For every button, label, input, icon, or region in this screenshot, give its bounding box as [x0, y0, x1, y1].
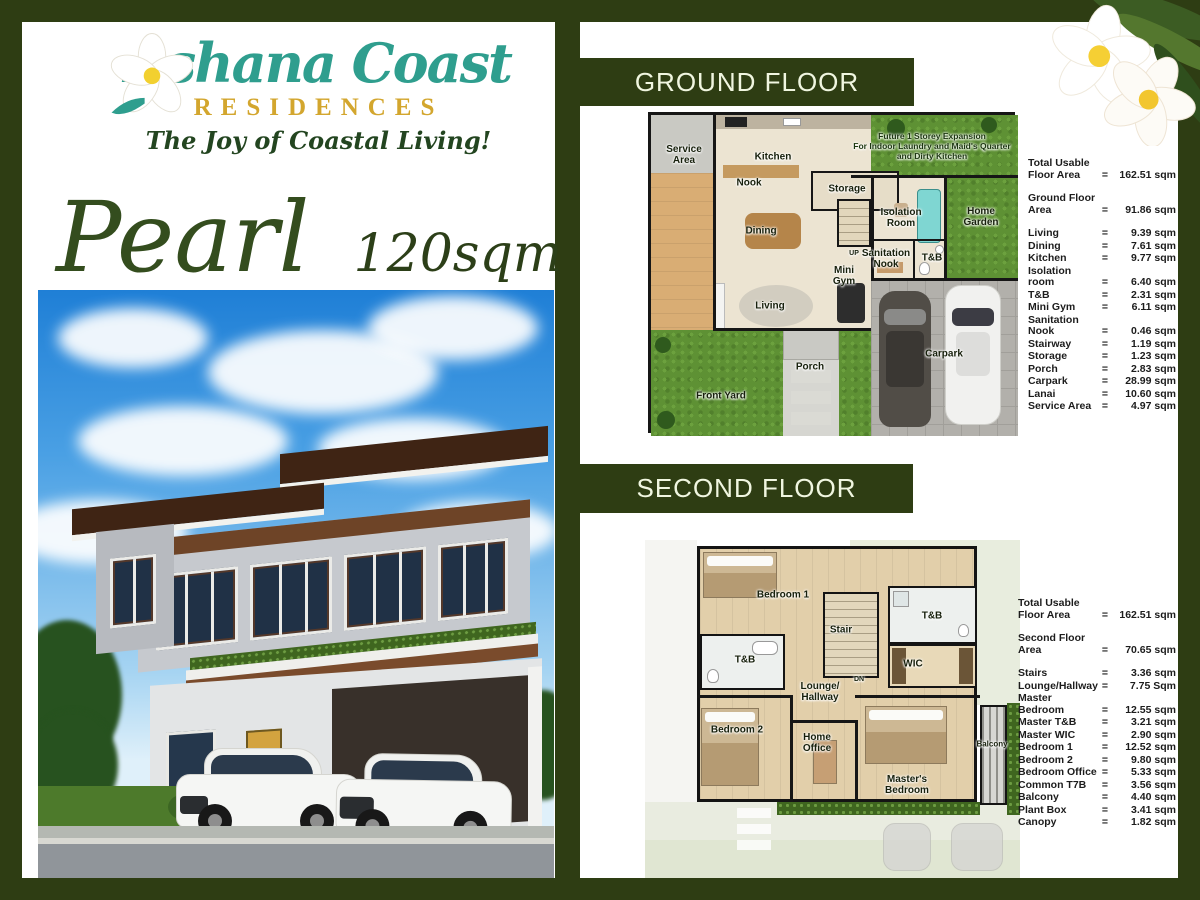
- car-suv: [176, 736, 362, 838]
- equals-sign: =: [1098, 170, 1112, 182]
- room-label: Kitchen: [755, 152, 792, 163]
- area-label: Total Usable Floor Area: [1028, 158, 1098, 181]
- area-table-row: Service Area = 4.97 sqm: [1028, 401, 1176, 413]
- window-mullion: [279, 564, 282, 634]
- area-value: 9.39 sqm: [1112, 228, 1176, 240]
- equals-sign: =: [1098, 717, 1112, 729]
- area-table-row: Stairway = 1.19 sqm: [1028, 339, 1176, 351]
- window-mullion: [485, 543, 488, 613]
- area-value: 162.51 sqm: [1112, 170, 1176, 182]
- window: [438, 538, 508, 621]
- area-value: 4.97 sqm: [1112, 401, 1176, 413]
- area-value: 5.33 sqm: [1112, 767, 1176, 779]
- room-label: Lounge/ Hallway: [801, 681, 840, 703]
- area-table-row: T&B = 2.31 sqm: [1028, 290, 1176, 302]
- area-label: Sanitation Nook: [1028, 315, 1098, 338]
- equals-sign: =: [1098, 730, 1112, 742]
- area-value: 9.80 sqm: [1112, 755, 1176, 767]
- window-mullion: [373, 555, 376, 625]
- area-table-row: Canopy = 1.82 sqm: [1018, 817, 1176, 829]
- area-value: 6.11 sqm: [1112, 302, 1176, 314]
- model-name: Pearl: [56, 188, 310, 288]
- area-label: Bedroom Office: [1018, 767, 1098, 779]
- area-value: 12.52 sqm: [1112, 742, 1176, 754]
- area-label: Total Usable Floor Area: [1018, 598, 1098, 621]
- equals-sign: =: [1098, 805, 1112, 817]
- area-label: Mini Gym: [1028, 302, 1098, 314]
- area-label: Bedroom 2: [1018, 755, 1098, 767]
- brand-logo: Ashana Coast RESIDENCES The Joy of Coast…: [22, 34, 555, 155]
- room-label: Master's Bedroom: [885, 774, 929, 796]
- area-table-row: Total Usable Floor Area = 162.51 sqm: [1018, 598, 1176, 621]
- area-table-row: Common T7B = 3.56 sqm: [1018, 780, 1176, 792]
- room-label: Balcony: [976, 740, 1007, 749]
- window-mullion: [133, 559, 136, 623]
- room-label: Front Yard: [696, 391, 746, 402]
- cloud: [58, 308, 208, 368]
- area-table-row: Balcony = 4.40 sqm: [1018, 792, 1176, 804]
- plumeria-decor-icon: [1038, 0, 1200, 146]
- equals-sign: =: [1098, 401, 1112, 413]
- area-label: Service Area: [1028, 401, 1098, 413]
- second-floor-plan: Bedroom 1 Stair T&B WIC T&B Lounge/ Hall…: [645, 540, 1020, 878]
- area-value: 2.83 sqm: [1112, 364, 1176, 376]
- equals-sign: =: [1098, 668, 1112, 680]
- window-mullion: [399, 552, 402, 622]
- area-value: 1.23 sqm: [1112, 351, 1176, 363]
- area-table-row: Lounge/Hallway = 7.75 Sqm: [1018, 681, 1176, 693]
- window-mullion: [463, 545, 466, 615]
- room-label: DN: [854, 676, 864, 684]
- area-table-row: Porch = 2.83 sqm: [1028, 364, 1176, 376]
- equals-sign: =: [1098, 364, 1112, 376]
- window: [250, 556, 332, 641]
- area-label: Kitchen: [1028, 253, 1098, 265]
- room-label: Carpark: [925, 349, 963, 360]
- area-value: 3.56 sqm: [1112, 780, 1176, 792]
- room-label: Bedroom 2: [711, 725, 763, 736]
- area-label: Master T&B: [1018, 717, 1098, 729]
- area-value: 12.55 sqm: [1112, 705, 1176, 717]
- area-value: 7.75 Sqm: [1112, 681, 1176, 693]
- area-label: Ground Floor Area: [1028, 193, 1098, 216]
- equals-sign: =: [1098, 767, 1112, 779]
- area-table-row: Bedroom Office = 5.33 sqm: [1018, 767, 1176, 779]
- room-label: T&B: [922, 611, 943, 622]
- room-label: Porch: [796, 362, 824, 373]
- area-label: Dining: [1028, 241, 1098, 253]
- area-label: Lounge/Hallway: [1018, 681, 1098, 693]
- house-render-photo: [38, 290, 554, 878]
- equals-sign: =: [1098, 755, 1112, 767]
- flyer-page: Ashana Coast RESIDENCES The Joy of Coast…: [0, 0, 1200, 900]
- equals-sign: =: [1098, 817, 1112, 829]
- area-label: T&B: [1028, 290, 1098, 302]
- brand-tagline: The Joy of Coastal Living!: [82, 126, 555, 155]
- room-label: Bedroom 1: [757, 590, 809, 601]
- window: [110, 554, 156, 629]
- area-label: Stairs: [1018, 668, 1098, 680]
- equals-sign: =: [1098, 376, 1112, 388]
- area-table-row: Plant Box = 3.41 sqm: [1018, 805, 1176, 817]
- area-table-row: Isolation room = 6.40 sqm: [1028, 266, 1176, 289]
- equals-sign: =: [1098, 389, 1112, 401]
- area-value: 2.90 sqm: [1112, 730, 1176, 742]
- area-value: 3.36 sqm: [1112, 668, 1176, 680]
- equals-sign: =: [1098, 253, 1112, 265]
- model-title: Pearl 120sqm: [56, 188, 548, 288]
- window-mullion: [185, 574, 188, 644]
- left-wing-wall: [96, 524, 174, 654]
- ground-floor-header: GROUND FLOOR: [580, 58, 914, 106]
- area-value: 2.31 sqm: [1112, 290, 1176, 302]
- window-mullion: [305, 562, 308, 632]
- ground-floor-area-table: Total Usable Floor Area = 162.51 sqm Gro…: [1028, 158, 1176, 414]
- area-label: Lanai: [1028, 389, 1098, 401]
- room-label: T&B: [922, 253, 943, 264]
- plumeria-flower-icon: [106, 28, 198, 120]
- area-value: 3.21 sqm: [1112, 717, 1176, 729]
- equals-sign: =: [1098, 241, 1112, 253]
- room-label: Service Area: [666, 144, 702, 166]
- ground-floor-plan: Service Area Kitchen Nook Storage Dining…: [648, 112, 1015, 433]
- room-label: Sanitation Nook: [862, 248, 910, 270]
- area-table-row: Total Usable Floor Area = 162.51 sqm: [1028, 158, 1176, 181]
- room-label: Stair: [830, 625, 852, 636]
- equals-sign: =: [1098, 351, 1112, 363]
- equals-sign: =: [1098, 705, 1112, 717]
- area-label: Master WIC: [1018, 730, 1098, 742]
- left-panel: Ashana Coast RESIDENCES The Joy of Coast…: [22, 22, 555, 878]
- area-label: Bedroom 1: [1018, 742, 1098, 754]
- room-label: Home Office: [803, 732, 831, 754]
- area-table-row: Living = 9.39 sqm: [1028, 228, 1176, 240]
- area-value: 4.40 sqm: [1112, 792, 1176, 804]
- area-value: 9.77 sqm: [1112, 253, 1176, 265]
- window: [344, 546, 426, 631]
- equals-sign: =: [1098, 290, 1112, 302]
- area-table-row: Master T&B = 3.21 sqm: [1018, 717, 1176, 729]
- second-floor-header: SECOND FLOOR: [580, 464, 913, 513]
- area-table-row: Kitchen = 9.77 sqm: [1028, 253, 1176, 265]
- area-table-row: Storage = 1.23 sqm: [1028, 351, 1176, 363]
- room-label: WIC: [903, 659, 922, 670]
- area-label: Storage: [1028, 351, 1098, 363]
- area-label: Balcony: [1018, 792, 1098, 804]
- area-label: Porch: [1028, 364, 1098, 376]
- ground-plan-labels: Service Area Kitchen Nook Storage Dining…: [651, 115, 1012, 430]
- area-value: 162.51 sqm: [1112, 610, 1176, 622]
- equals-sign: =: [1098, 302, 1112, 314]
- equals-sign: =: [1098, 277, 1112, 289]
- area-value: 0.46 sqm: [1112, 326, 1176, 338]
- area-label: Living: [1028, 228, 1098, 240]
- area-value: 10.60 sqm: [1112, 389, 1176, 401]
- carport-pillar: [528, 666, 542, 827]
- equals-sign: =: [1098, 205, 1112, 217]
- area-table-row: Carpark = 28.99 sqm: [1028, 376, 1176, 388]
- cloud: [78, 406, 288, 476]
- area-label: Stairway: [1028, 339, 1098, 351]
- area-label: Plant Box: [1018, 805, 1098, 817]
- room-label: Mini Gym: [833, 265, 855, 287]
- cloud: [368, 296, 538, 360]
- second-floor-area-table: Total Usable Floor Area = 162.51 sqm Sec…: [1018, 598, 1176, 830]
- area-table-row: Mini Gym = 6.11 sqm: [1028, 302, 1176, 314]
- area-value: 70.65 sqm: [1112, 645, 1176, 657]
- area-label: Master Bedroom: [1018, 693, 1098, 716]
- sidewalk: [38, 826, 554, 838]
- area-label: Isolation room: [1028, 266, 1098, 289]
- area-table-row: Master Bedroom = 12.55 sqm: [1018, 693, 1176, 716]
- area-table-row: Bedroom 2 = 9.80 sqm: [1018, 755, 1176, 767]
- room-label: Future 1 Storey Expansion For Indoor Lau…: [842, 131, 1022, 161]
- equals-sign: =: [1098, 742, 1112, 754]
- room-label: Isolation Room: [880, 207, 921, 229]
- area-value: 1.82 sqm: [1112, 817, 1176, 829]
- area-label: Carpark: [1028, 376, 1098, 388]
- area-value: 6.40 sqm: [1112, 277, 1176, 289]
- area-table-row: Second Floor Area = 70.65 sqm: [1018, 633, 1176, 656]
- area-table-row: Stairs = 3.36 sqm: [1018, 668, 1176, 680]
- area-table-row: Lanai = 10.60 sqm: [1028, 389, 1176, 401]
- room-label: Dining: [745, 226, 776, 237]
- area-table-row: Sanitation Nook = 0.46 sqm: [1028, 315, 1176, 338]
- road: [38, 844, 554, 878]
- equals-sign: =: [1098, 780, 1112, 792]
- equals-sign: =: [1098, 681, 1112, 693]
- equals-sign: =: [1098, 645, 1112, 657]
- area-value: 91.86 sqm: [1112, 205, 1176, 217]
- room-label: Storage: [828, 184, 865, 195]
- right-panel: GROUND FLOOR: [580, 22, 1178, 878]
- area-label: Common T7B: [1018, 780, 1098, 792]
- equals-sign: =: [1098, 792, 1112, 804]
- second-plan-labels: Bedroom 1 Stair T&B WIC T&B Lounge/ Hall…: [645, 540, 1020, 878]
- equals-sign: =: [1098, 228, 1112, 240]
- area-value: 28.99 sqm: [1112, 376, 1176, 388]
- area-table-row: Ground Floor Area = 91.86 sqm: [1028, 193, 1176, 216]
- room-label: UP: [849, 250, 859, 258]
- area-value: 7.61 sqm: [1112, 241, 1176, 253]
- area-value: 1.19 sqm: [1112, 339, 1176, 351]
- area-label: Second Floor Area: [1018, 633, 1098, 656]
- equals-sign: =: [1098, 326, 1112, 338]
- room-label: T&B: [735, 655, 756, 666]
- model-size: 120sqm: [354, 224, 563, 284]
- area-label: Canopy: [1018, 817, 1098, 829]
- room-label: Nook: [737, 178, 762, 189]
- equals-sign: =: [1098, 610, 1112, 622]
- area-table-row: Master WIC = 2.90 sqm: [1018, 730, 1176, 742]
- area-table-row: Bedroom 1 = 12.52 sqm: [1018, 742, 1176, 754]
- room-label: Living: [755, 301, 784, 312]
- room-label: Home Garden: [963, 206, 998, 228]
- equals-sign: =: [1098, 339, 1112, 351]
- area-value: 3.41 sqm: [1112, 805, 1176, 817]
- window-mullion: [211, 572, 214, 642]
- area-table-row: Dining = 7.61 sqm: [1028, 241, 1176, 253]
